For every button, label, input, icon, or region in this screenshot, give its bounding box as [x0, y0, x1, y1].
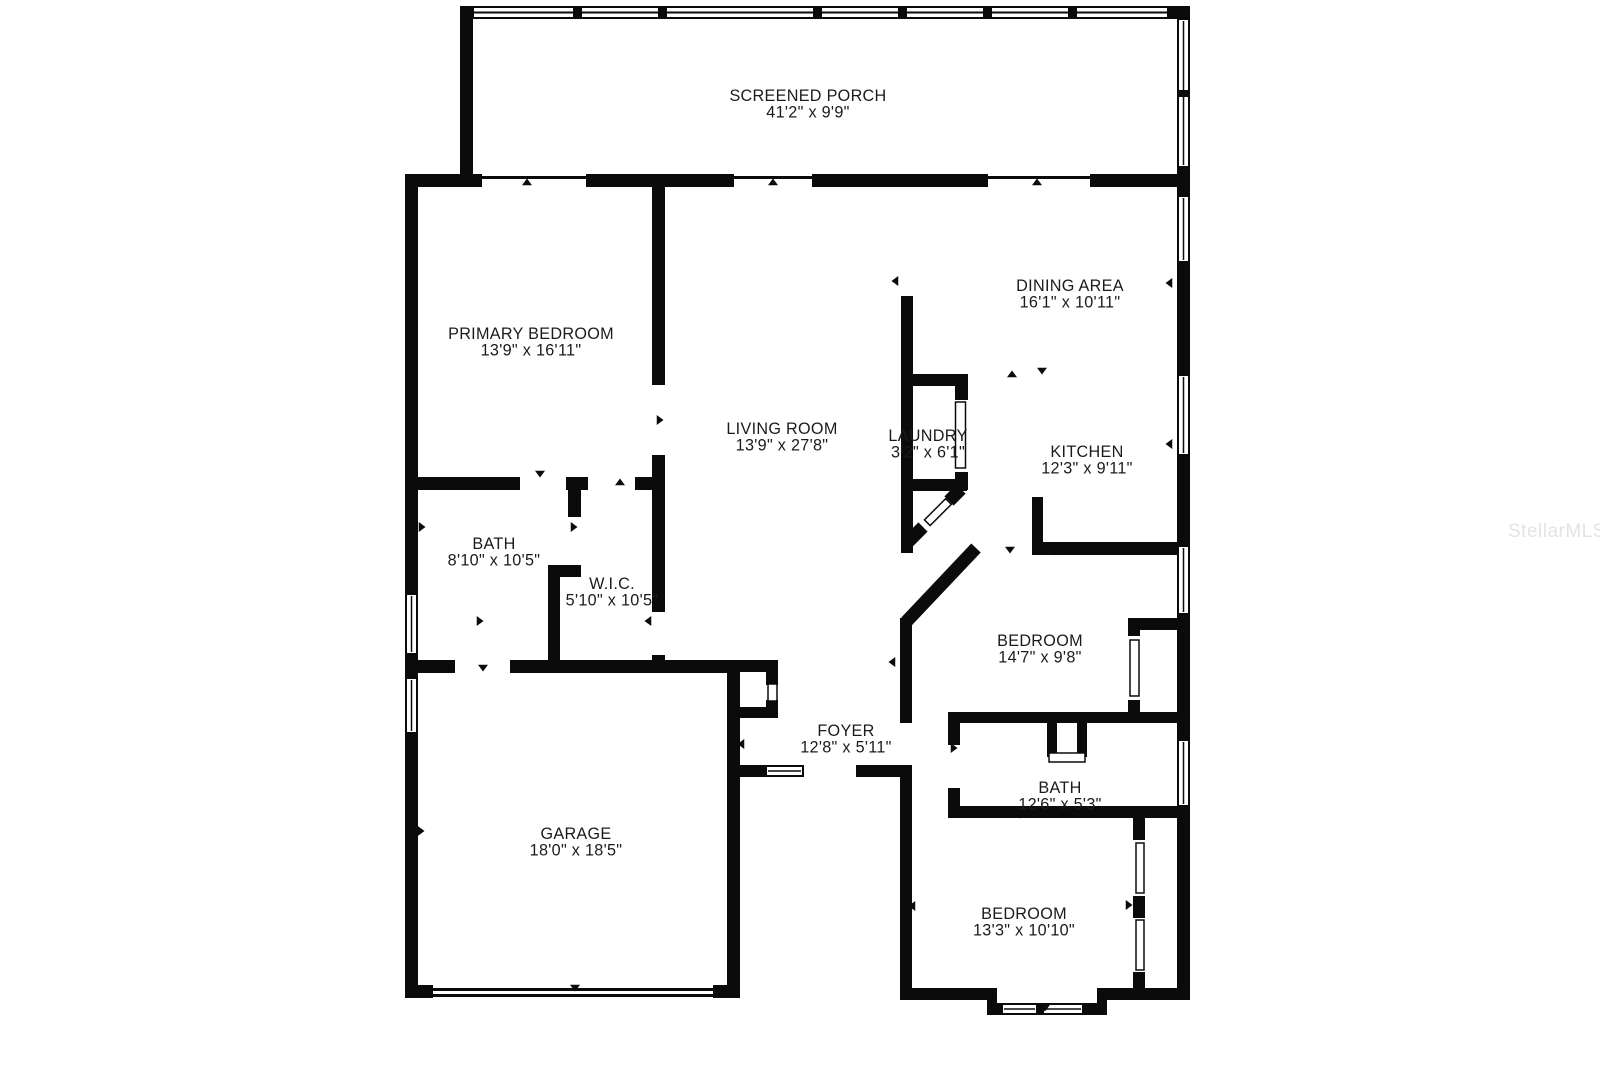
direction-marker-icon — [1037, 368, 1047, 375]
room-label-dining-area: DINING AREA16'1" x 10'11" — [1016, 277, 1124, 312]
direction-marker-icon — [645, 616, 652, 626]
room-label-bath-hall: BATH12'6" x 5'3" — [1018, 779, 1101, 814]
direction-marker-icon — [419, 522, 426, 532]
room-labels-layer: SCREENED PORCH41'2" x 9'9"PRIMARY BEDROO… — [448, 87, 1133, 940]
direction-marker-icon — [1005, 547, 1015, 554]
direction-marker-icon — [657, 415, 664, 425]
direction-marker-icon — [1126, 900, 1133, 910]
direction-marker-icon — [535, 471, 545, 478]
direction-marker-icon — [478, 665, 488, 672]
direction-marker-icon — [418, 826, 425, 836]
room-label-bath-primary: BATH8'10" x 10'5" — [448, 535, 541, 570]
direction-marker-icon — [892, 276, 899, 286]
walls-layer — [405, 6, 1190, 1015]
direction-marker-icon — [1166, 439, 1173, 449]
direction-marker-icon — [1166, 278, 1173, 288]
direction-marker-icon — [889, 657, 896, 667]
floor-plan-page: SCREENED PORCH41'2" x 9'9"PRIMARY BEDROO… — [0, 0, 1600, 1066]
direction-marker-icon — [1007, 371, 1017, 378]
watermark: StellarMLS — [1508, 521, 1600, 542]
direction-marker-icon — [477, 616, 484, 626]
room-label-laundry: LAUNDRY3'2" x 6'1" — [888, 427, 967, 462]
direction-marker-icon — [1032, 179, 1042, 186]
room-label-foyer: FOYER12'8" x 5'11" — [800, 722, 891, 757]
room-label-kitchen: KITCHEN12'3" x 9'11" — [1041, 443, 1132, 478]
direction-marker-icon — [768, 179, 778, 186]
room-label-living-room: LIVING ROOM13'9" x 27'8" — [726, 420, 837, 455]
room-label-bedroom-bottom: BEDROOM13'3" x 10'10" — [973, 905, 1075, 940]
floor-plan-canvas: SCREENED PORCH41'2" x 9'9"PRIMARY BEDROO… — [0, 0, 1600, 1066]
direction-marker-icon — [571, 522, 578, 532]
room-label-screened-porch: SCREENED PORCH41'2" x 9'9" — [729, 87, 886, 122]
windows-layer — [406, 6, 1190, 1014]
room-label-bedroom-middle: BEDROOM14'7" x 9'8" — [997, 632, 1083, 667]
room-label-garage: GARAGE18'0" x 18'5" — [530, 825, 623, 860]
room-label-walk-in-closet: W.I.C.5'10" x 10'5" — [566, 575, 659, 610]
room-label-primary-bedroom: PRIMARY BEDROOM13'9" x 16'11" — [448, 325, 614, 360]
direction-marker-icon — [615, 479, 625, 486]
direction-marker-icon — [522, 179, 532, 186]
